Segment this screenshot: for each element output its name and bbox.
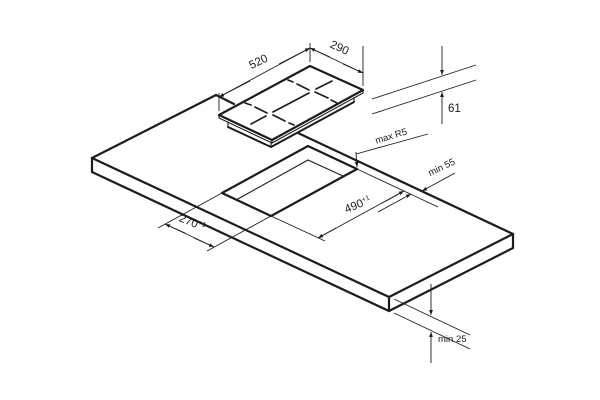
min-25-rail-top bbox=[394, 299, 470, 335]
worktop-bottom-front-right-edge bbox=[389, 248, 513, 311]
dim-290-arrow-right bbox=[343, 64, 363, 73]
worktop-bottom-front-left-edge bbox=[92, 172, 389, 311]
dim-490-label: 490+1 bbox=[343, 195, 373, 216]
dim-520-arrow-right bbox=[279, 48, 310, 64]
dim-290-label: 290 bbox=[328, 39, 350, 58]
cutout-inner-wall-back-right bbox=[308, 160, 343, 176]
min-55-arrow-outer bbox=[422, 173, 455, 191]
worktop-front-left-edge bbox=[92, 158, 389, 297]
dim-hob-height: 61 bbox=[372, 46, 476, 124]
dim-290-arrow-left bbox=[310, 48, 330, 57]
worktop-back-left-edge bbox=[92, 95, 216, 158]
dim-490-tolerance: +1 bbox=[361, 195, 371, 205]
dim-61-label: 61 bbox=[448, 103, 461, 115]
cutout bbox=[222, 146, 357, 216]
dim-worktop-thickness: min 25 bbox=[394, 284, 470, 363]
dim-490-arrow-left bbox=[318, 228, 336, 238]
min-25-label: min 25 bbox=[438, 334, 467, 345]
dim-61-rail-top bbox=[372, 65, 476, 99]
dim-490-extension-line bbox=[271, 216, 325, 241]
min-55-label: min 55 bbox=[427, 157, 457, 179]
dim-cutout-radius: max R5 bbox=[356, 127, 428, 167]
dim-270-label: 270+1 bbox=[177, 213, 207, 234]
dim-520-label: 520 bbox=[247, 53, 270, 72]
dim-cutout-width: 270+1 bbox=[158, 193, 271, 251]
dim-270-tolerance: +1 bbox=[197, 220, 207, 230]
dim-270-value: 270 bbox=[177, 213, 199, 231]
hob bbox=[219, 66, 363, 147]
installation-diagram-page: 520 290 61 max R5 min 55 490+1 bbox=[0, 0, 600, 400]
max-r5-arrow bbox=[356, 152, 357, 167]
worktop bbox=[92, 95, 513, 311]
dim-270-arrow-right bbox=[194, 238, 214, 247]
cutout-outline bbox=[222, 146, 357, 216]
installation-diagram: 520 290 61 max R5 min 55 490+1 bbox=[0, 0, 600, 400]
max-r5-label: max R5 bbox=[374, 127, 409, 147]
dim-270-extension-line-front bbox=[207, 216, 271, 251]
dim-520-arrow-left bbox=[219, 81, 250, 97]
worktop-front-right-edge bbox=[389, 234, 513, 297]
dim-cutout-length: 490+1 bbox=[271, 191, 404, 241]
